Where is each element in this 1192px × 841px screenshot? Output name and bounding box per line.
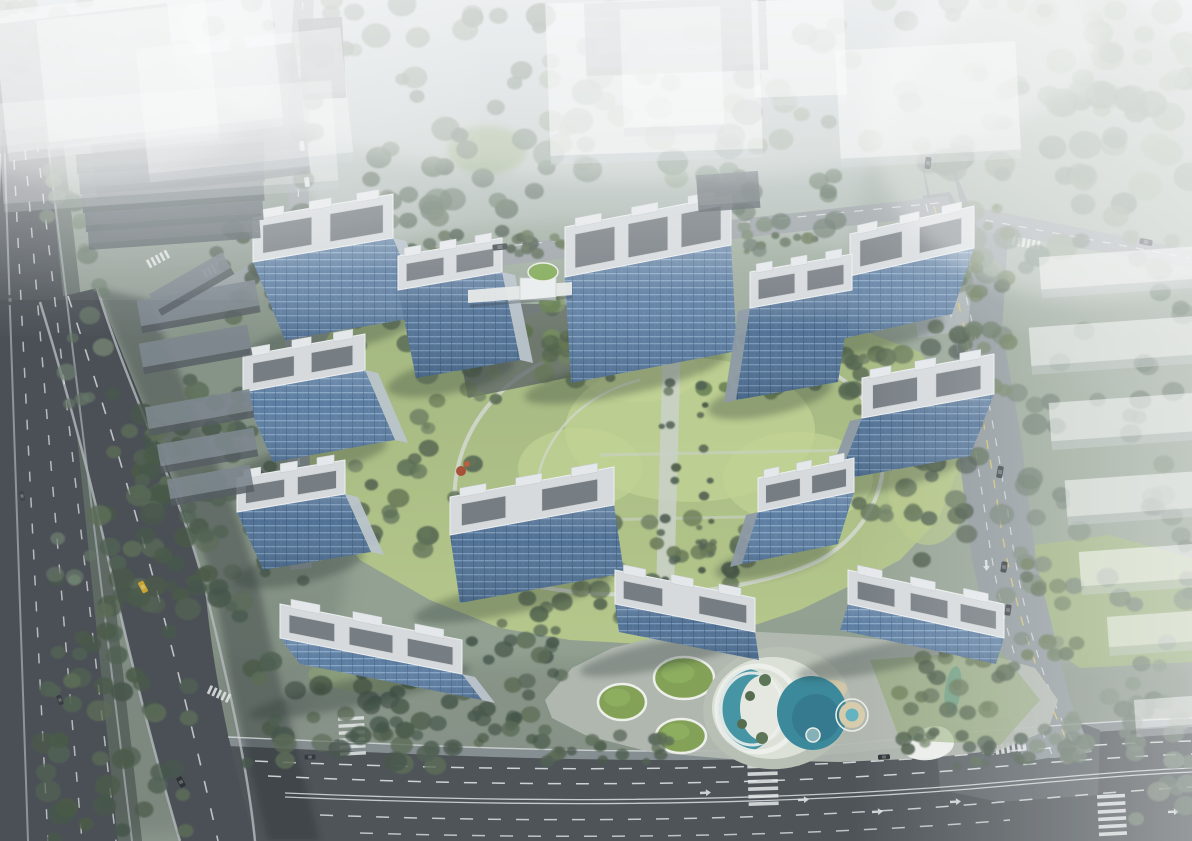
masterplan-render: [0, 0, 1192, 841]
atmospheric-haze: [0, 0, 1192, 841]
masterplan-svg: [0, 0, 1192, 841]
global-tint: [0, 0, 1192, 841]
